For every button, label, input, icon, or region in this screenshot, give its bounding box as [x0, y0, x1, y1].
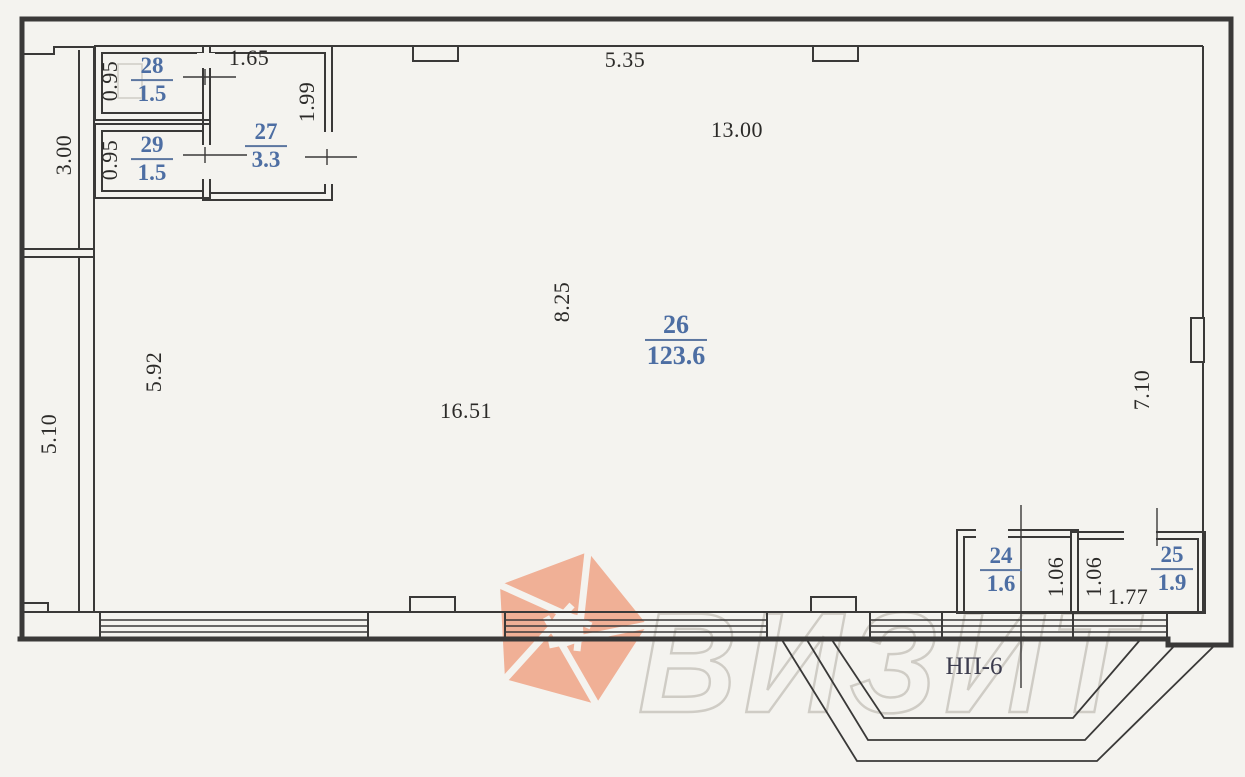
dim-5-35: 5.35	[605, 47, 646, 73]
room-number: 28	[141, 54, 164, 78]
dim-1-99: 1.99	[294, 82, 320, 123]
room-area: 1.5	[138, 161, 167, 185]
dim-1-06-b: 1.06	[1081, 557, 1107, 598]
room-area: 123.6	[647, 342, 706, 369]
pilasters	[410, 46, 1204, 612]
door-openings	[197, 53, 1156, 548]
room-area: 3.3	[252, 148, 281, 172]
aperture-logo-icon	[500, 552, 647, 704]
room-number: 26	[663, 311, 689, 338]
dim-0-95-b: 0.95	[97, 140, 123, 181]
dim-7-10: 7.10	[1129, 370, 1155, 411]
room-number: 29	[141, 133, 164, 157]
dim-5-10: 5.10	[36, 414, 62, 455]
room-area: 1.9	[1158, 571, 1187, 595]
dim-3-00: 3.00	[51, 135, 77, 176]
floor-plan-drawing	[0, 0, 1245, 777]
dim-0-95-a: 0.95	[97, 61, 123, 102]
room-number: 27	[255, 120, 278, 144]
room-number: 25	[1161, 543, 1184, 567]
dim-1-65: 1.65	[229, 45, 270, 71]
dim-5-92: 5.92	[141, 352, 167, 393]
room-label-26: 26 123.6	[645, 311, 707, 369]
room-area: 1.6	[987, 572, 1016, 596]
room-label-25: 25 1.9	[1151, 543, 1193, 595]
dim-1-77: 1.77	[1108, 584, 1149, 610]
room-label-29: 29 1.5	[131, 133, 173, 185]
room-label-28: 28 1.5	[131, 54, 173, 106]
room-label-24: 24 1.6	[980, 544, 1022, 596]
dim-8-25: 8.25	[549, 282, 575, 323]
room-area: 1.5	[138, 82, 167, 106]
dim-16-51: 16.51	[440, 398, 492, 424]
dim-13-00: 13.00	[711, 117, 763, 143]
floor-plan-page: ВИЗИТ	[0, 0, 1245, 777]
premise-label: НП-6	[946, 653, 1003, 681]
room-number: 24	[990, 544, 1013, 568]
dim-1-06-a: 1.06	[1043, 557, 1069, 598]
room-label-27: 27 3.3	[245, 120, 287, 172]
